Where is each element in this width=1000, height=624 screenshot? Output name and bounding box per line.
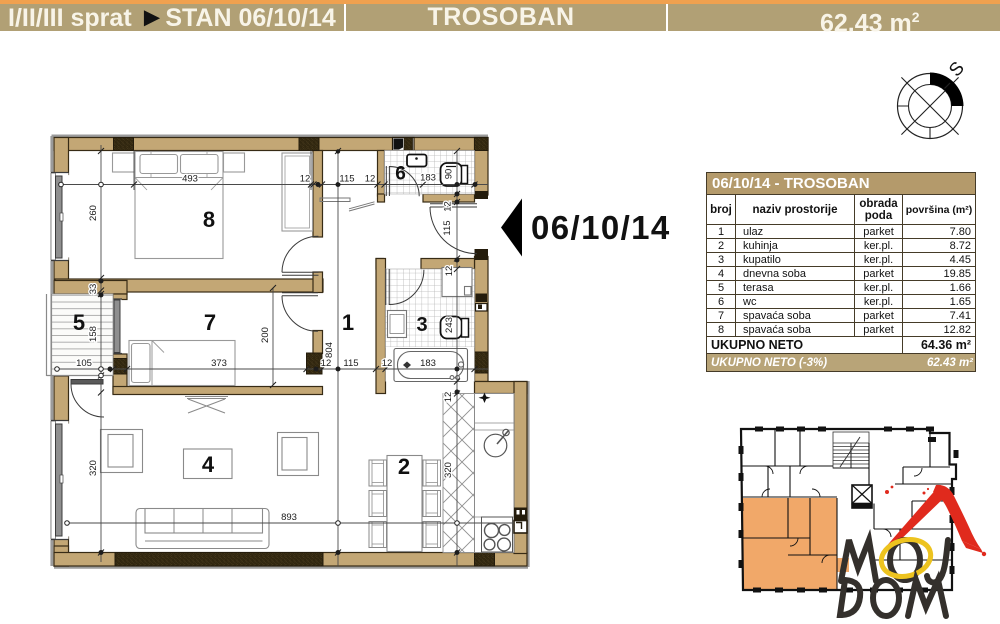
svg-text:105: 105 [76, 358, 92, 369]
svg-text:33: 33 [88, 284, 99, 295]
svg-text:115: 115 [343, 358, 358, 369]
svg-text:158: 158 [88, 326, 99, 342]
svg-text:S: S [944, 57, 968, 80]
svg-text:4: 4 [202, 452, 215, 477]
svg-text:243: 243 [444, 317, 455, 333]
svg-text:183: 183 [420, 173, 436, 184]
svg-text:493: 493 [182, 174, 198, 185]
svg-text:3: 3 [416, 314, 427, 336]
svg-text:893: 893 [281, 512, 297, 523]
svg-text:183: 183 [420, 358, 436, 369]
svg-text:115: 115 [339, 174, 354, 185]
svg-text:115: 115 [442, 220, 453, 235]
svg-text:260: 260 [88, 205, 99, 221]
svg-text:12: 12 [382, 358, 393, 369]
svg-text:12: 12 [444, 266, 455, 277]
svg-text:5: 5 [73, 310, 85, 335]
svg-text:7: 7 [204, 310, 216, 335]
svg-text:12: 12 [443, 201, 454, 212]
svg-text:06/10/14: 06/10/14 [531, 209, 671, 246]
svg-text:12: 12 [365, 174, 376, 185]
svg-text:90: 90 [444, 169, 455, 180]
svg-text:8: 8 [203, 207, 215, 232]
svg-text:12: 12 [321, 358, 332, 369]
svg-text:6: 6 [395, 164, 406, 185]
svg-text:804: 804 [324, 342, 335, 358]
svg-text:2: 2 [398, 454, 410, 479]
svg-text:12: 12 [300, 174, 311, 185]
svg-text:1: 1 [342, 310, 354, 335]
svg-text:12: 12 [443, 392, 454, 403]
svg-text:320: 320 [88, 460, 99, 476]
svg-text:373: 373 [211, 358, 227, 369]
svg-text:200: 200 [260, 327, 271, 343]
svg-text:320: 320 [443, 462, 454, 478]
